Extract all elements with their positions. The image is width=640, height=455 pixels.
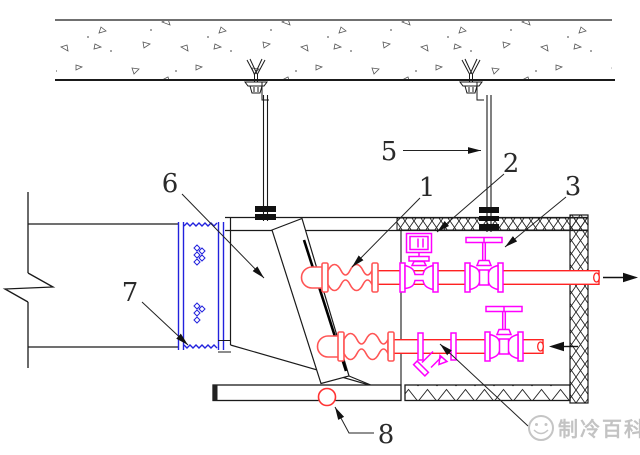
- canvas-seam-bottom: [184, 345, 217, 348]
- callout-3: 3: [565, 172, 582, 202]
- canvas-weave-marks: [194, 245, 205, 323]
- rod-nut: [479, 207, 499, 213]
- flexible-duct-connector: [179, 222, 224, 350]
- diagram-canvas: 1 2 3 5 6 7 8 制冷百科: [0, 0, 640, 455]
- callout-5: 5: [381, 137, 398, 167]
- rod-nut: [479, 216, 499, 221]
- leader-7: [142, 302, 188, 345]
- hanger-rod: [264, 95, 268, 221]
- callout-2: 2: [503, 149, 520, 179]
- flow-arrow-out: [603, 273, 638, 282]
- gate-valve-supply: [465, 238, 503, 293]
- pipe-end-cap: [594, 273, 600, 282]
- callout-1: 1: [419, 173, 436, 203]
- rod-nut: [479, 224, 499, 230]
- pipe-end-cap: [538, 342, 544, 351]
- right-insulated-wall: [570, 215, 588, 403]
- concrete-slab: [55, 20, 615, 80]
- bottom-insulation-band: [405, 385, 570, 401]
- hanger-left: [245, 59, 276, 221]
- callout-labels: 1 2 3 5 6 7 8: [122, 137, 582, 450]
- supply-duct: [5, 192, 178, 368]
- duct-break-symbol: [5, 273, 53, 302]
- gate-valve-return: [485, 307, 523, 362]
- watermark-logo-icon: [529, 416, 553, 440]
- flexible-hose-lower: [318, 332, 395, 361]
- technical-drawing: 1 2 3 5 6 7 8 制冷百科: [0, 0, 640, 455]
- filter-coil-panel: [272, 219, 372, 386]
- hanger-right: [460, 59, 499, 232]
- callout-8: 8: [378, 420, 395, 450]
- flexible-hose-upper: [302, 263, 379, 292]
- rod-nut: [255, 214, 276, 220]
- watermark: 制冷百科: [529, 416, 640, 441]
- concrete-speckle: [56, 21, 612, 79]
- drain-pan: [213, 385, 570, 401]
- rod-nut: [255, 206, 276, 212]
- watermark-text: 制冷百科: [558, 417, 640, 441]
- callout-7: 7: [122, 278, 139, 308]
- leader-8: [335, 407, 374, 433]
- drain-outlet: [319, 389, 336, 406]
- fan-coil-unit-casing: [218, 215, 588, 403]
- callout-6: 6: [162, 169, 179, 199]
